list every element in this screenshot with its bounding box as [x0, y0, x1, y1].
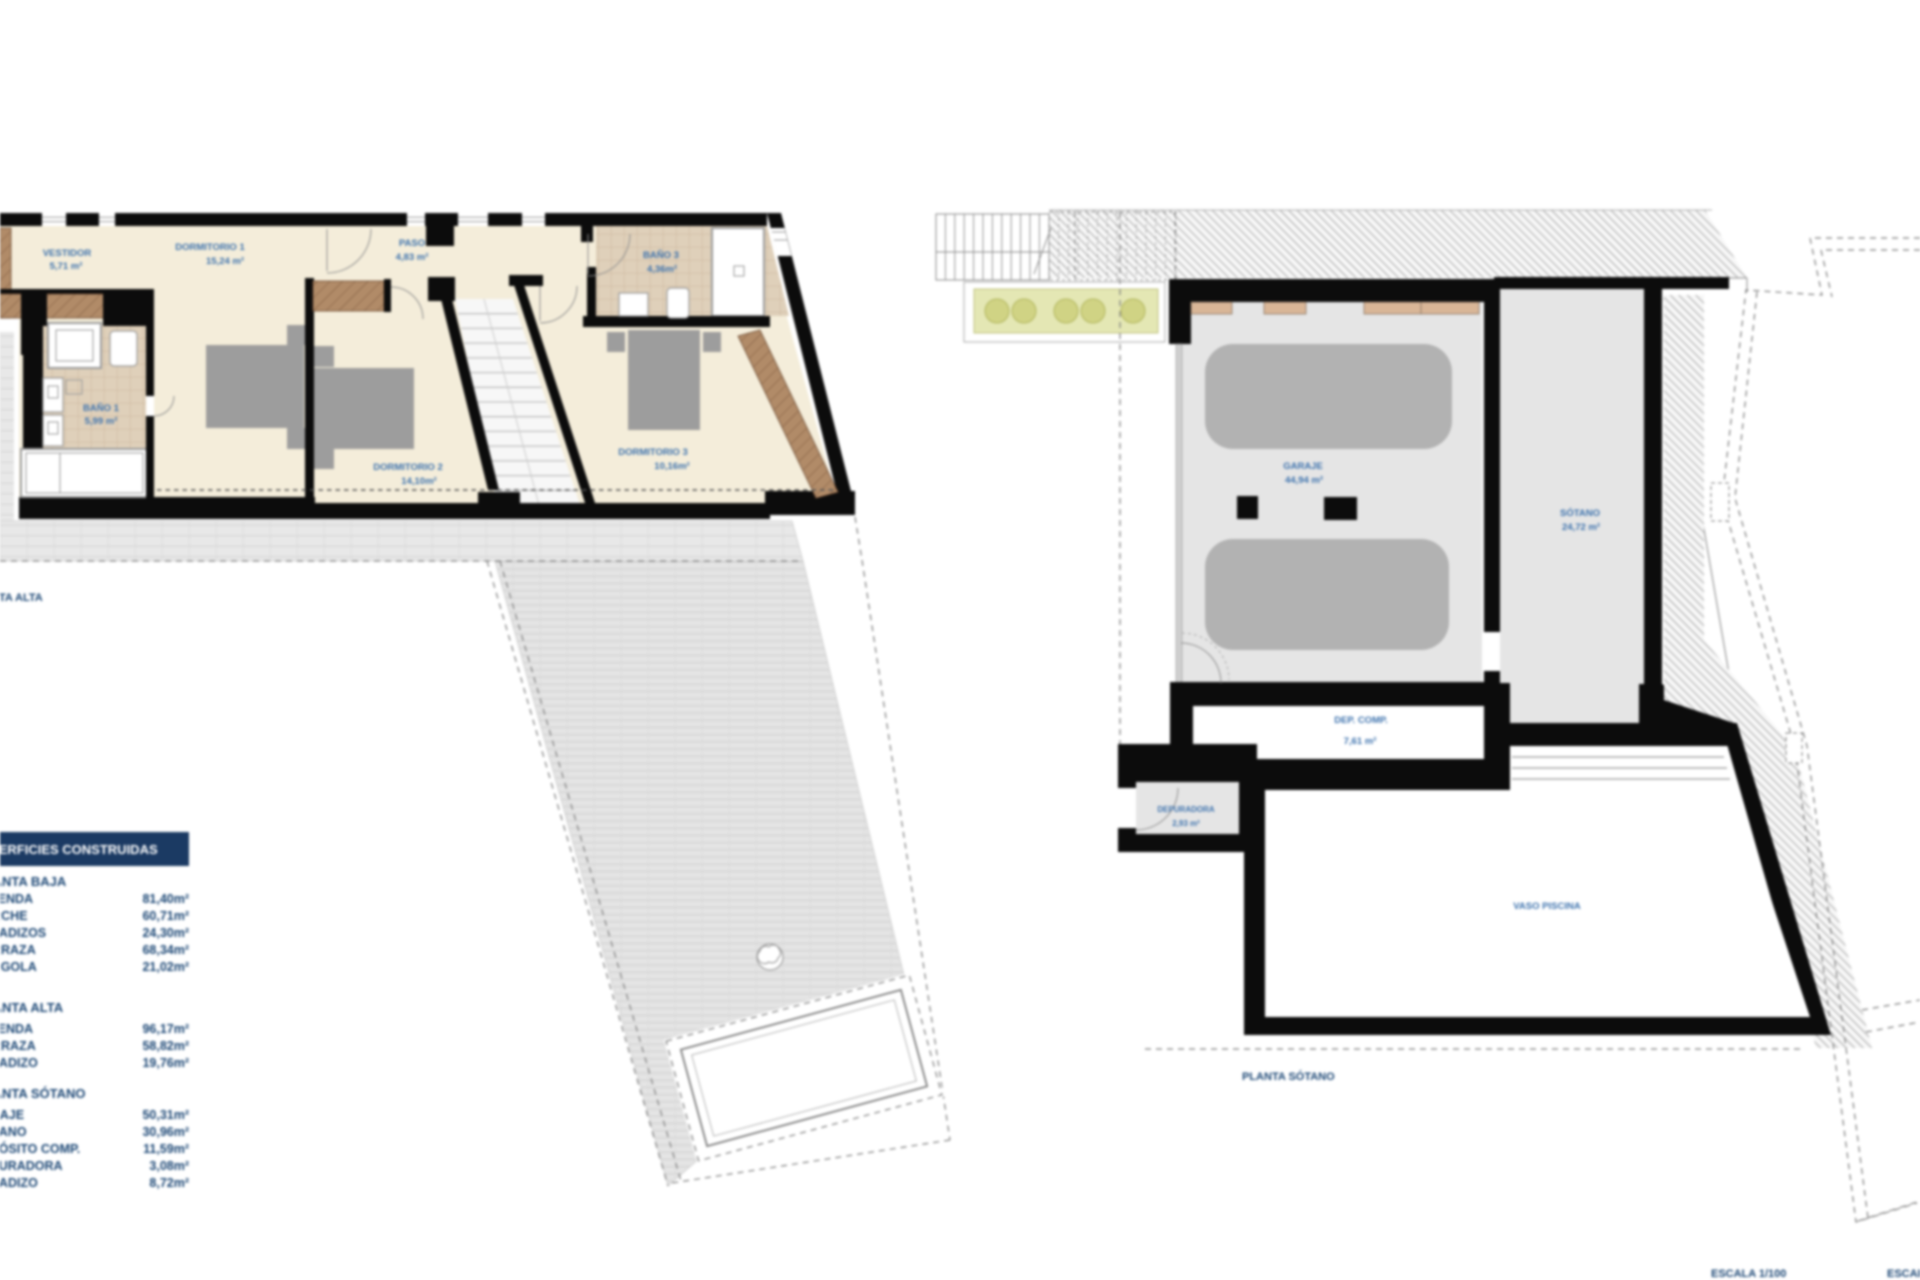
svg-text:44,94 m²: 44,94 m²: [1285, 475, 1323, 486]
svg-text:15,24 m²: 15,24 m²: [206, 256, 244, 267]
svg-text:4,36m²: 4,36m²: [647, 264, 677, 275]
svg-text:4,83 m²: 4,83 m²: [396, 252, 429, 263]
svg-text:5,99 m²: 5,99 m²: [85, 416, 118, 427]
svg-text:VASO PISCINA: VASO PISCINA: [1513, 901, 1581, 912]
svg-text:DORMITORIO 1: DORMITORIO 1: [175, 242, 245, 253]
svg-text:ESCALA 1/100: ESCALA 1/100: [1711, 1268, 1786, 1280]
svg-text:50,31m²: 50,31m²: [142, 1108, 189, 1122]
svg-text:PÉRGOLA: PÉRGOLA: [0, 959, 37, 974]
svg-text:24,72 m²: 24,72 m²: [1562, 522, 1600, 533]
svg-text:GARAJE: GARAJE: [0, 1108, 24, 1122]
svg-text:8,72m²: 8,72m²: [149, 1176, 189, 1190]
svg-text:DEPÓSITO COMP.: DEPÓSITO COMP.: [0, 1141, 80, 1156]
svg-text:SÓTANO: SÓTANO: [0, 1124, 27, 1139]
svg-text:TEJADIZO: TEJADIZO: [0, 1056, 38, 1070]
svg-text:7,61 m²: 7,61 m²: [1344, 736, 1377, 747]
svg-text:PLANTA ALTA: PLANTA ALTA: [0, 592, 43, 604]
svg-text:PLANTA BAJA: PLANTA BAJA: [0, 874, 67, 889]
svg-text:68,34m²: 68,34m²: [142, 943, 189, 957]
svg-text:10,16m²: 10,16m²: [654, 461, 689, 472]
svg-text:30,96m²: 30,96m²: [142, 1125, 189, 1139]
svg-text:60,71m²: 60,71m²: [142, 909, 189, 923]
svg-text:VIVIENDA: VIVIENDA: [0, 1022, 33, 1036]
svg-text:VIVIENDA: VIVIENDA: [0, 892, 33, 906]
svg-text:DORMITORIO 3: DORMITORIO 3: [618, 447, 688, 458]
svg-text:PASO: PASO: [399, 238, 425, 249]
svg-text:11,59m²: 11,59m²: [143, 1142, 189, 1156]
svg-text:TEJADIZO: TEJADIZO: [0, 1176, 38, 1190]
svg-text:19,76m²: 19,76m²: [142, 1056, 189, 1070]
svg-text:2,93 m²: 2,93 m²: [1172, 819, 1200, 828]
svg-text:DEPURADORA: DEPURADORA: [0, 1159, 63, 1173]
svg-text:VESTIDOR: VESTIDOR: [43, 248, 92, 259]
svg-text:TERRAZA: TERRAZA: [0, 1039, 36, 1053]
svg-text:3,08m²: 3,08m²: [149, 1159, 189, 1173]
svg-text:DEP. COMP.: DEP. COMP.: [1334, 715, 1388, 726]
svg-text:PLANTA ALTA: PLANTA ALTA: [0, 1000, 64, 1015]
svg-text:PLANTA SÓTANO: PLANTA SÓTANO: [0, 1086, 86, 1101]
svg-text:BAÑO 3: BAÑO 3: [643, 250, 679, 261]
svg-text:TEJADIZOS: TEJADIZOS: [0, 926, 46, 940]
svg-text:DEPURADORA: DEPURADORA: [1157, 805, 1215, 814]
svg-text:TERRAZA: TERRAZA: [0, 943, 36, 957]
svg-text:GARAJE: GARAJE: [1283, 461, 1323, 472]
svg-text:DORMITORIO 2: DORMITORIO 2: [373, 462, 443, 473]
svg-text:ESCALA 1/1: ESCALA 1/1: [1887, 1268, 1920, 1280]
svg-text:58,82m²: 58,82m²: [142, 1039, 189, 1053]
svg-text:BAÑO 1: BAÑO 1: [83, 403, 120, 414]
svg-text:SÓTANO: SÓTANO: [1560, 507, 1600, 519]
svg-text:81,40m²: 81,40m²: [142, 892, 189, 906]
svg-text:21,02m²: 21,02m²: [142, 960, 189, 974]
svg-text:24,30m²: 24,30m²: [142, 926, 189, 940]
svg-text:PORCHE: PORCHE: [0, 909, 27, 923]
svg-text:14,10m²: 14,10m²: [401, 476, 436, 487]
svg-text:SUPERFICIES CONSTRUIDAS: SUPERFICIES CONSTRUIDAS: [0, 842, 158, 857]
svg-text:PLANTA SÓTANO: PLANTA SÓTANO: [1242, 1070, 1335, 1083]
svg-text:5,71 m²: 5,71 m²: [50, 261, 83, 272]
svg-text:96,17m²: 96,17m²: [142, 1022, 189, 1036]
